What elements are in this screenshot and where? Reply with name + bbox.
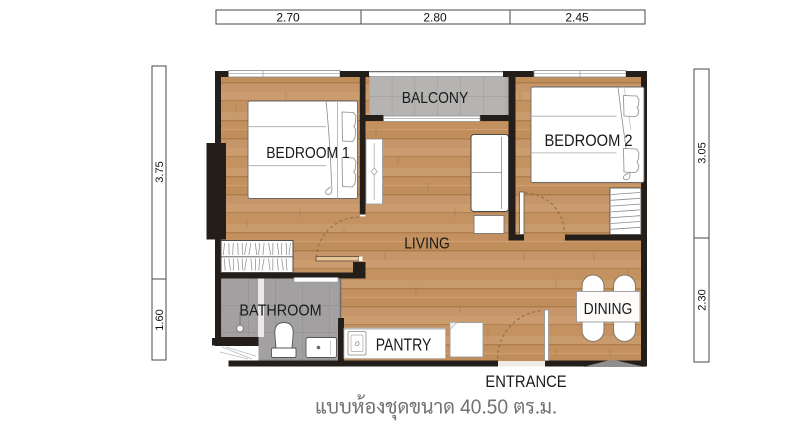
svg-text:ENTRANCE: ENTRANCE xyxy=(485,373,566,391)
svg-text:1.60: 1.60 xyxy=(154,309,166,330)
svg-text:BEDROOM 1: BEDROOM 1 xyxy=(266,144,349,162)
svg-text:PANTRY: PANTRY xyxy=(376,335,432,355)
svg-text:DINING: DINING xyxy=(584,300,633,318)
svg-text:3.75: 3.75 xyxy=(154,161,166,182)
svg-text:BEDROOM 2: BEDROOM 2 xyxy=(544,132,632,150)
svg-text:2.45: 2.45 xyxy=(565,11,589,25)
svg-text:BALCONY: BALCONY xyxy=(402,89,468,107)
svg-text:2.80: 2.80 xyxy=(423,11,447,25)
svg-text:2.30: 2.30 xyxy=(697,289,709,310)
svg-text:3.05: 3.05 xyxy=(697,142,709,163)
svg-text:BATHROOM: BATHROOM xyxy=(239,302,321,320)
svg-text:LIVING: LIVING xyxy=(404,235,450,253)
svg-text:2.70: 2.70 xyxy=(276,11,300,25)
